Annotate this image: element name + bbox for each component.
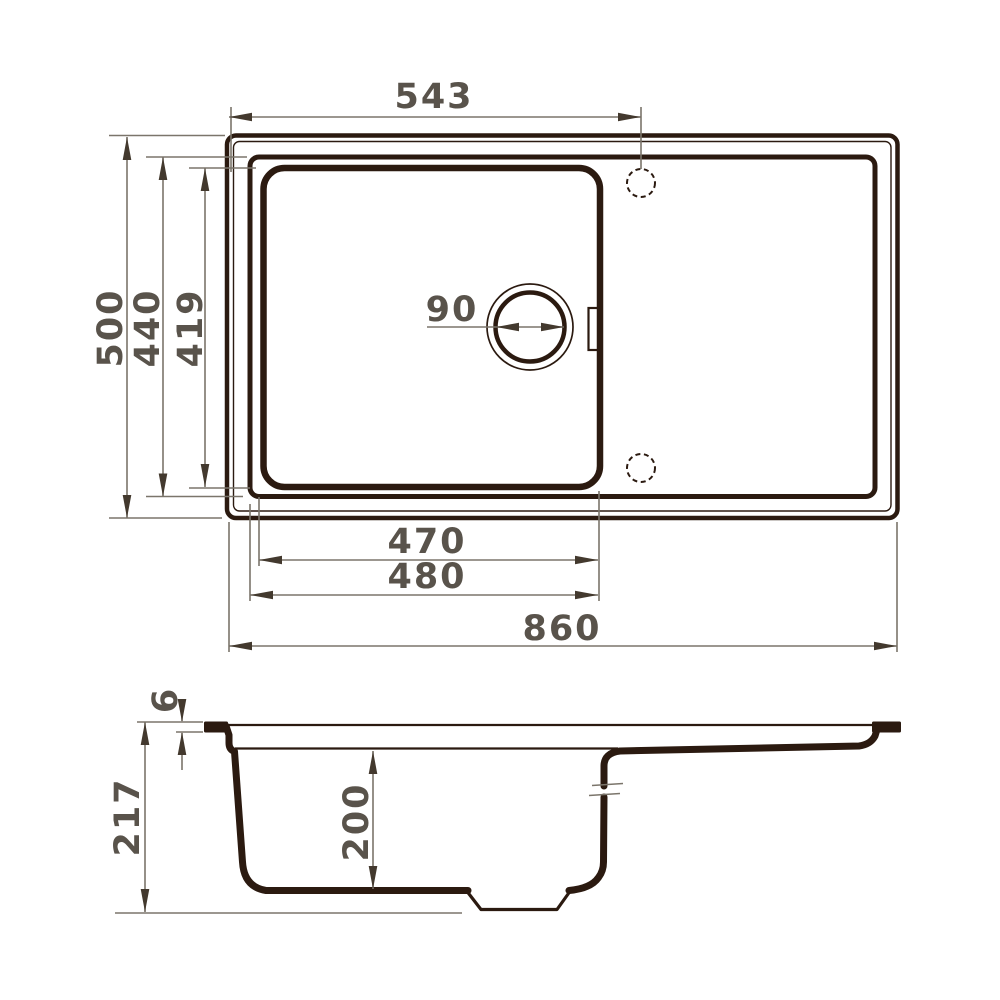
arrowhead — [874, 642, 897, 651]
dim-label-860: 860 — [522, 609, 601, 649]
arrowhead — [178, 732, 187, 755]
dim-217: 217 — [108, 722, 462, 913]
sink-technical-drawing: 543 500 440 419 90 470 — [0, 0, 1000, 1000]
arrowhead — [229, 113, 252, 122]
dim-label-90: 90 — [426, 290, 479, 330]
drawing-canvas: 543 500 440 419 90 470 — [0, 0, 1000, 1000]
arrowhead — [575, 591, 598, 600]
dim-419: 419 — [171, 168, 256, 488]
section-profile-right — [569, 728, 878, 891]
dim-200: 200 — [337, 751, 377, 889]
dim-label-419: 419 — [171, 288, 211, 367]
arrowhead — [123, 137, 132, 160]
extension-line — [137, 722, 203, 732]
arrowhead — [369, 751, 378, 774]
dim-label-470: 470 — [387, 522, 466, 562]
dim-label-6: 6 — [146, 687, 186, 713]
dim-label-480: 480 — [387, 557, 466, 597]
arrowhead — [141, 889, 150, 912]
arrowhead — [229, 642, 252, 651]
dim-label-543: 543 — [394, 77, 473, 117]
arrowhead — [618, 113, 641, 122]
dim-6: 6 — [137, 687, 203, 770]
faucet-hole-front — [627, 454, 655, 482]
arrowhead — [575, 556, 598, 565]
arrowhead — [159, 157, 168, 180]
arrowhead — [259, 556, 282, 565]
dim-label-217: 217 — [108, 777, 148, 856]
arrowhead — [201, 168, 210, 191]
faucet-hole-back — [627, 169, 655, 197]
arrowhead — [201, 464, 210, 487]
dim-860: 860 — [229, 522, 897, 652]
section-view — [204, 722, 901, 910]
dim-label-440: 440 — [128, 288, 168, 367]
arrowhead — [123, 495, 132, 518]
arrowhead — [496, 323, 519, 332]
arrowhead — [250, 591, 273, 600]
dim-label-200: 200 — [337, 782, 377, 861]
dim-label-500: 500 — [91, 288, 131, 367]
arrowhead — [369, 866, 378, 889]
arrowhead — [141, 722, 150, 745]
drain-recess — [468, 892, 570, 910]
arrowhead — [541, 323, 564, 332]
arrowhead — [159, 474, 168, 497]
break-mark — [589, 784, 623, 796]
